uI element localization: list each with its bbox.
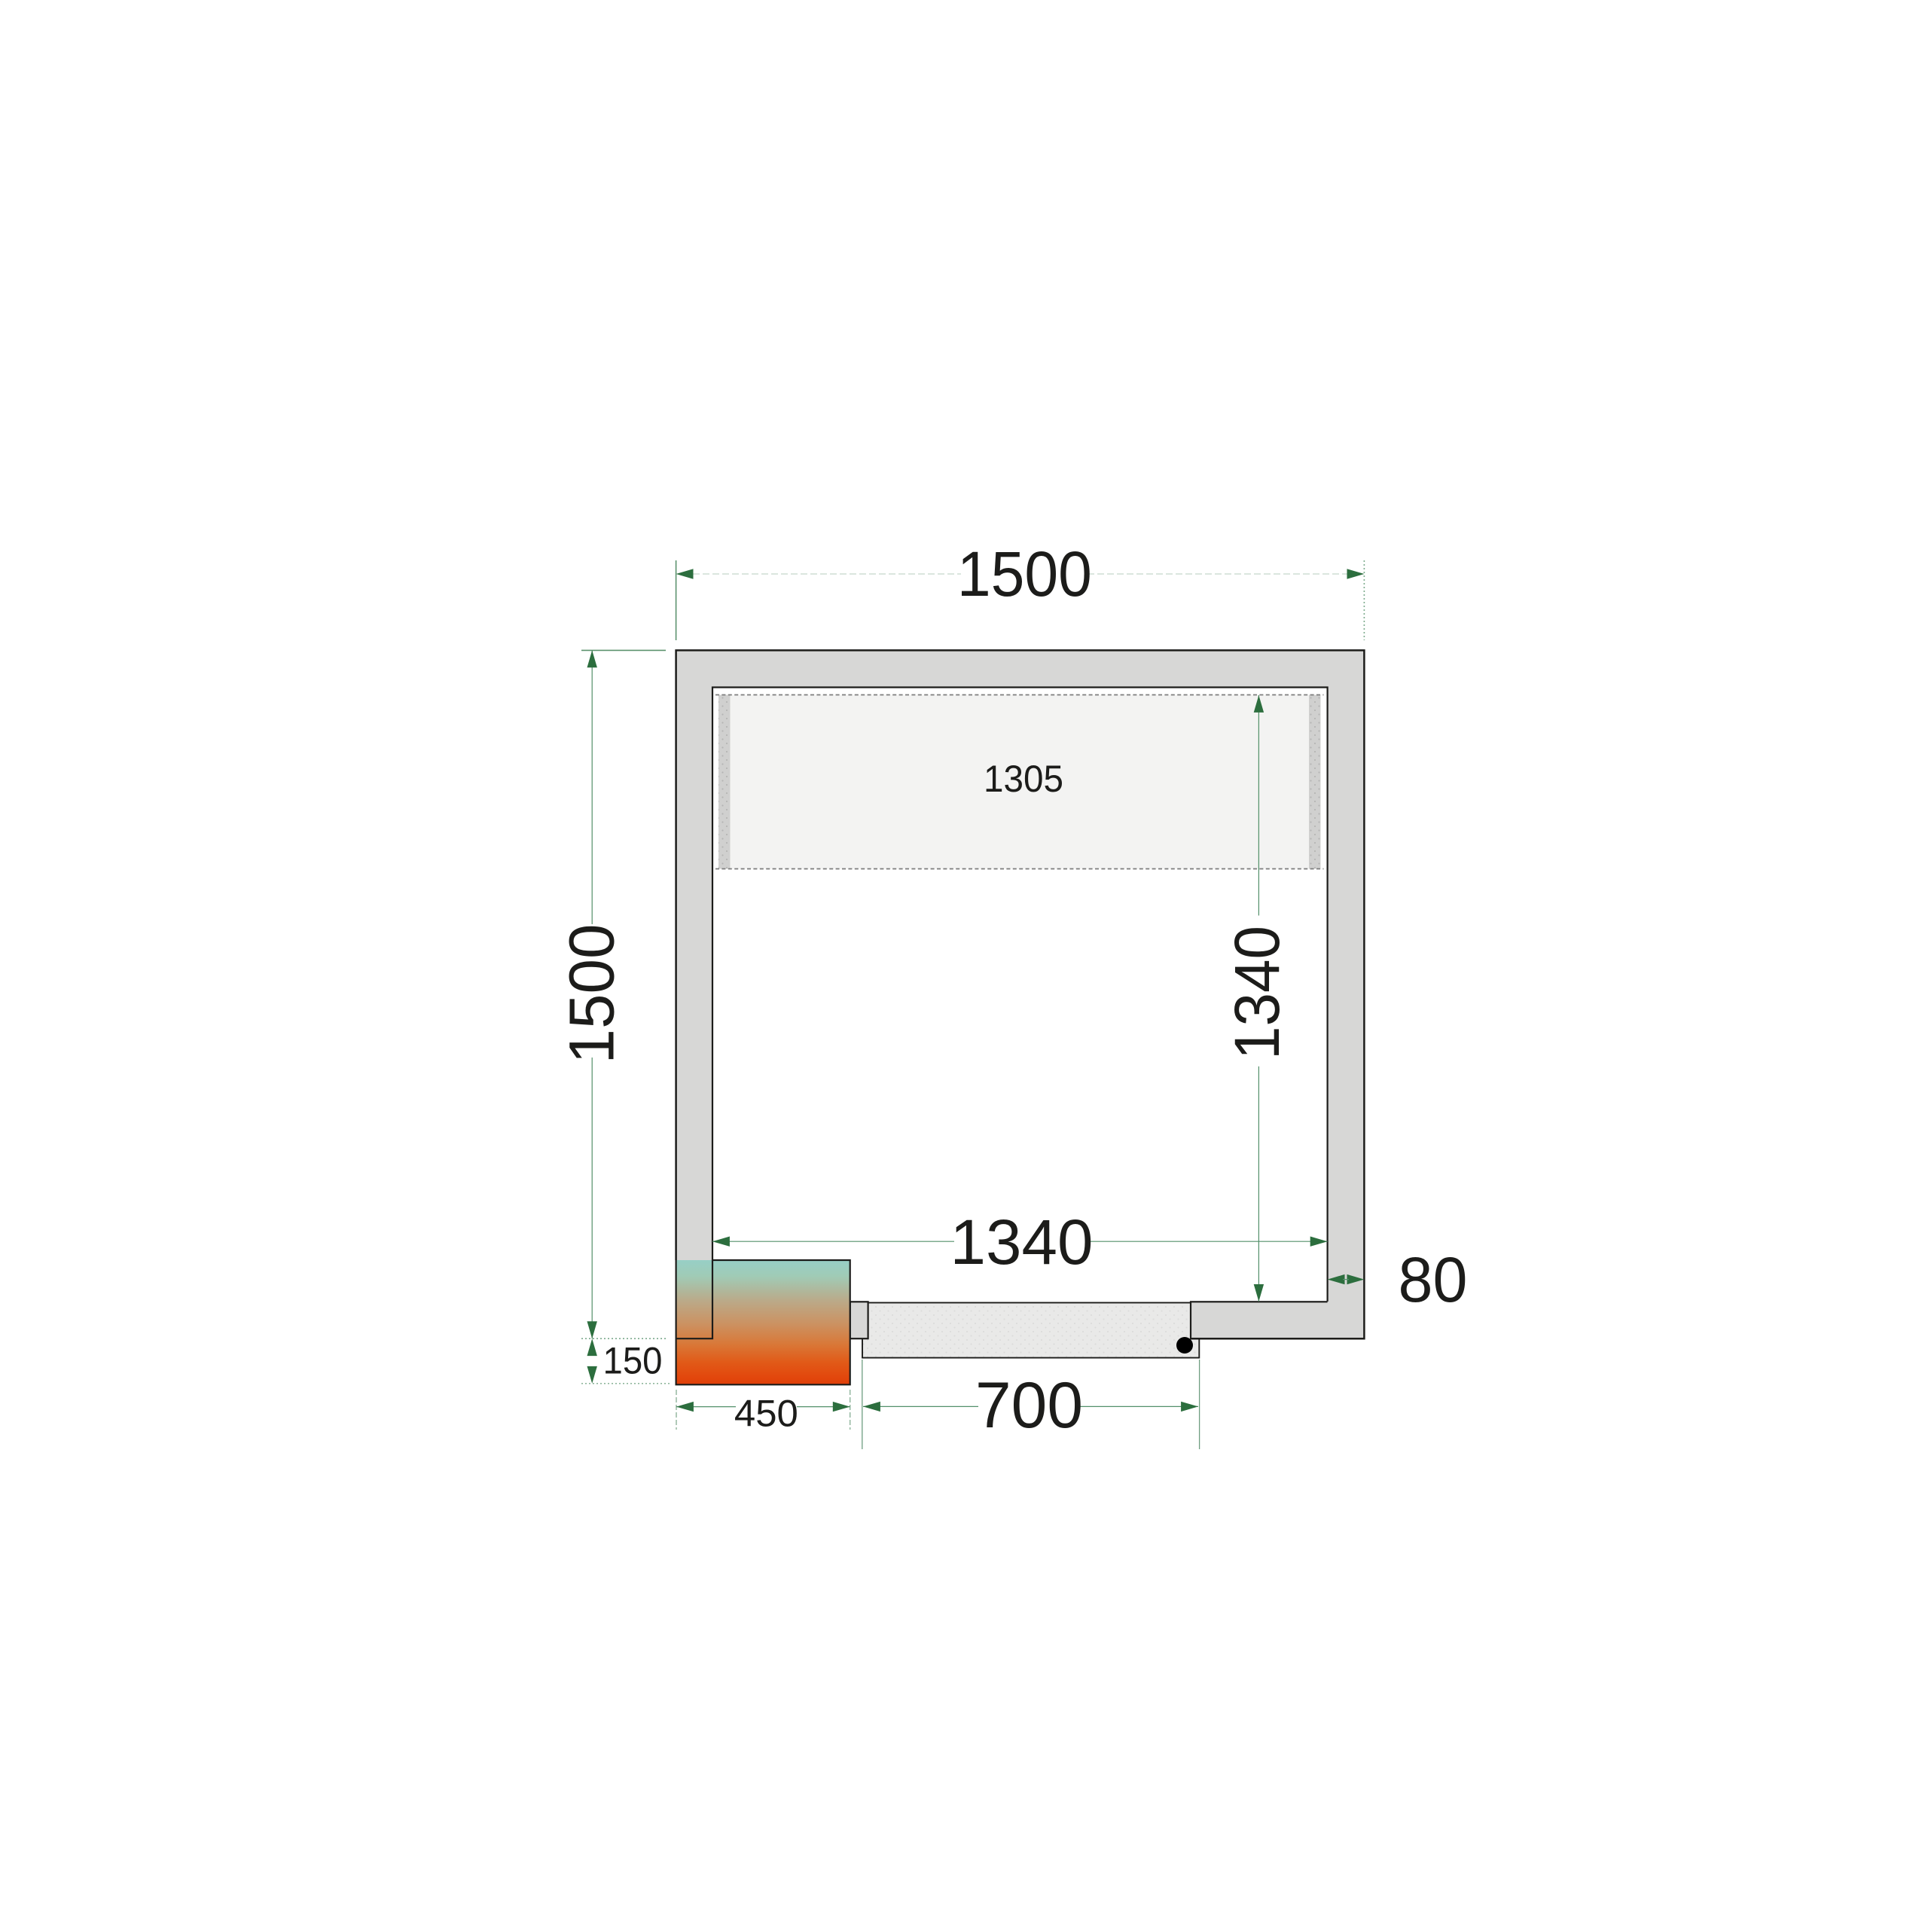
svg-text:1305: 1305 xyxy=(984,758,1063,800)
svg-text:450: 450 xyxy=(734,1392,798,1434)
svg-text:80: 80 xyxy=(1399,1244,1468,1315)
svg-text:150: 150 xyxy=(603,1340,663,1382)
svg-text:1340: 1340 xyxy=(950,1207,1094,1277)
svg-text:1500: 1500 xyxy=(557,924,627,1064)
svg-text:1500: 1500 xyxy=(957,539,1092,609)
svg-text:700: 700 xyxy=(975,1369,1083,1442)
svg-text:1340: 1340 xyxy=(1222,926,1292,1060)
